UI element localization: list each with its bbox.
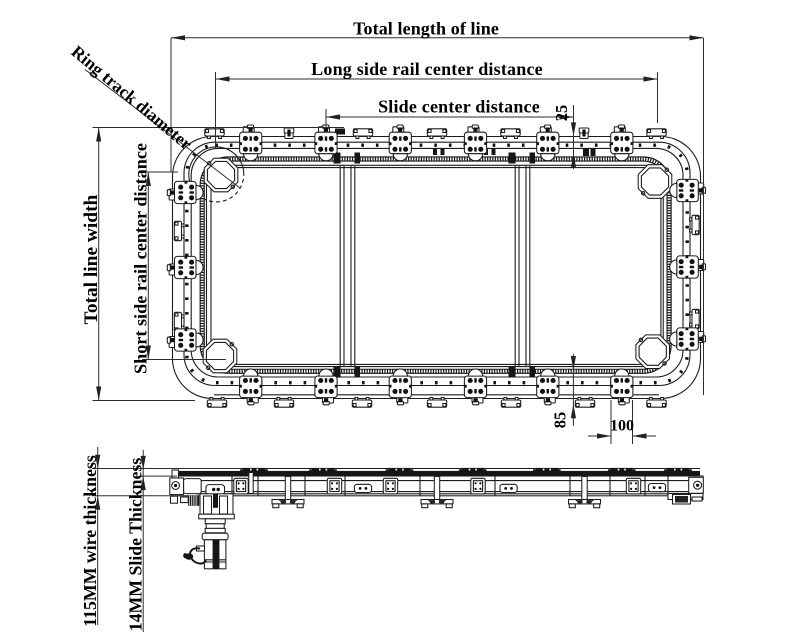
svg-text:Ring track diameter: Ring track diameter — [68, 41, 197, 154]
svg-text:Total line width: Total line width — [81, 194, 102, 324]
svg-text:115MM wire thickness: 115MM wire thickness — [80, 455, 100, 627]
svg-text:Long side rail center distance: Long side rail center distance — [311, 59, 543, 79]
svg-text:25: 25 — [552, 105, 571, 122]
svg-text:Slide center distance: Slide center distance — [378, 97, 540, 117]
svg-text:14MM Slide Thickness: 14MM Slide Thickness — [126, 458, 146, 632]
svg-text:Total length of line: Total length of line — [353, 18, 499, 38]
svg-text:Short side rail center distanc: Short side rail center distance — [131, 143, 151, 374]
svg-text:85: 85 — [551, 412, 570, 429]
svg-text:100: 100 — [610, 418, 634, 435]
